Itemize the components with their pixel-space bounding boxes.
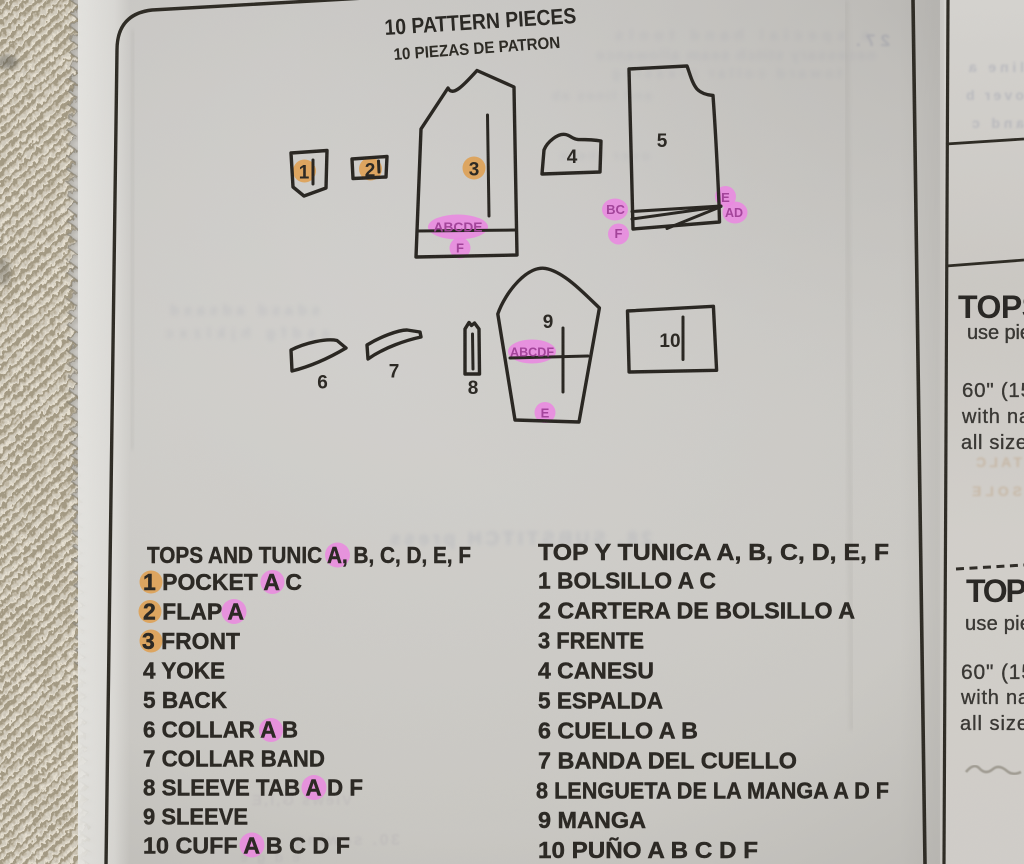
svg-text:9 SLEEVE: 9 SLEEVE <box>143 804 248 830</box>
svg-text:7 COLLAR BAND: 7 COLLAR BAND <box>143 746 325 772</box>
svg-text:F: F <box>615 226 623 241</box>
svg-text:2 FLAP A: 2 FLAP A <box>143 599 244 625</box>
svg-text:27.: 27. <box>856 31 890 50</box>
svg-text:E: E <box>721 190 730 205</box>
svg-text:1 BOLSILLO A C: 1 BOLSILLO A C <box>538 568 716 594</box>
svg-text:4 CANESU: 4 CANESU <box>538 658 654 684</box>
svg-text:TOPS AND TUNIC A, B, C, D, E,: TOPS AND TUNIC A, B, C, D, E, F <box>147 542 471 568</box>
svg-text:4: 4 <box>567 147 578 168</box>
svg-text:use pie: use pie <box>965 613 1024 635</box>
svg-text:all size: all size <box>960 713 1024 735</box>
svg-text:6 COLLAR A B: 6 COLLAR A B <box>143 717 298 743</box>
svg-text:with na: with na <box>961 406 1024 428</box>
svg-text:TOPS: TOPS <box>966 573 1024 609</box>
svg-text:BC: BC <box>606 202 625 217</box>
svg-text:with na: with na <box>960 687 1024 709</box>
svg-text:use pie: use pie <box>967 322 1024 344</box>
svg-text:7: 7 <box>389 362 400 383</box>
svg-text:8: 8 <box>468 378 479 399</box>
svg-text:2: 2 <box>365 161 376 182</box>
svg-text:AD: AD <box>725 206 743 220</box>
svg-text:all size: all size <box>961 432 1024 454</box>
svg-text:3 FRONT: 3 FRONT <box>142 628 241 654</box>
svg-text:2 CARTERA DE BOLSILLO A: 2 CARTERA DE BOLSILLO A <box>538 598 855 624</box>
svg-text:1: 1 <box>299 163 310 184</box>
svg-text:3: 3 <box>469 160 480 181</box>
svg-text:9 MANGA: 9 MANGA <box>538 807 646 833</box>
svg-text:6 CUELLO A B: 6 CUELLO A B <box>538 718 698 744</box>
svg-text:7 BANDA DEL CUELLO: 7 BANDA DEL CUELLO <box>538 748 797 774</box>
svg-text:line a: line a <box>969 59 1024 75</box>
svg-text:5 BACK: 5 BACK <box>143 687 227 713</box>
svg-text:8 LENGUETA DE LA MANGA A D F: 8 LENGUETA DE LA MANGA A D F <box>536 778 889 804</box>
svg-text:TOPS: TOPS <box>958 289 1024 325</box>
svg-text:5 ESPALDA: 5 ESPALDA <box>538 688 663 714</box>
svg-text:6: 6 <box>317 373 328 394</box>
svg-text:10: 10 <box>659 331 680 352</box>
svg-text:5: 5 <box>657 131 668 152</box>
svg-text:8 SLEEVE TAB A D F: 8 SLEEVE TAB A D F <box>143 775 363 801</box>
svg-text:TOP Y TUNICA A, B, C, D, E, F: TOP Y TUNICA A, B, C, D, E, F <box>538 539 889 565</box>
svg-text:60" (15: 60" (15 <box>962 379 1024 402</box>
svg-text:4 YOKE: 4 YOKE <box>143 658 225 684</box>
svg-text:F: F <box>456 241 464 256</box>
svg-text:10 CUFF A B C D F: 10 CUFF A B C D F <box>143 833 350 859</box>
svg-text:1 POCKET A C: 1 POCKET A C <box>143 569 302 595</box>
svg-text:9: 9 <box>543 312 554 333</box>
svg-text:60" (15: 60" (15 <box>961 661 1024 684</box>
svg-text:E: E <box>541 406 550 421</box>
svg-text:and lines ab: and lines ab <box>552 88 652 103</box>
svg-text:ABCDE: ABCDE <box>434 221 483 235</box>
svg-text:10 PUÑO A B C D F: 10 PUÑO A B C D F <box>538 836 758 863</box>
svg-text:3 FRENTE: 3 FRENTE <box>538 628 644 654</box>
svg-text:ABCDF: ABCDF <box>510 346 554 360</box>
